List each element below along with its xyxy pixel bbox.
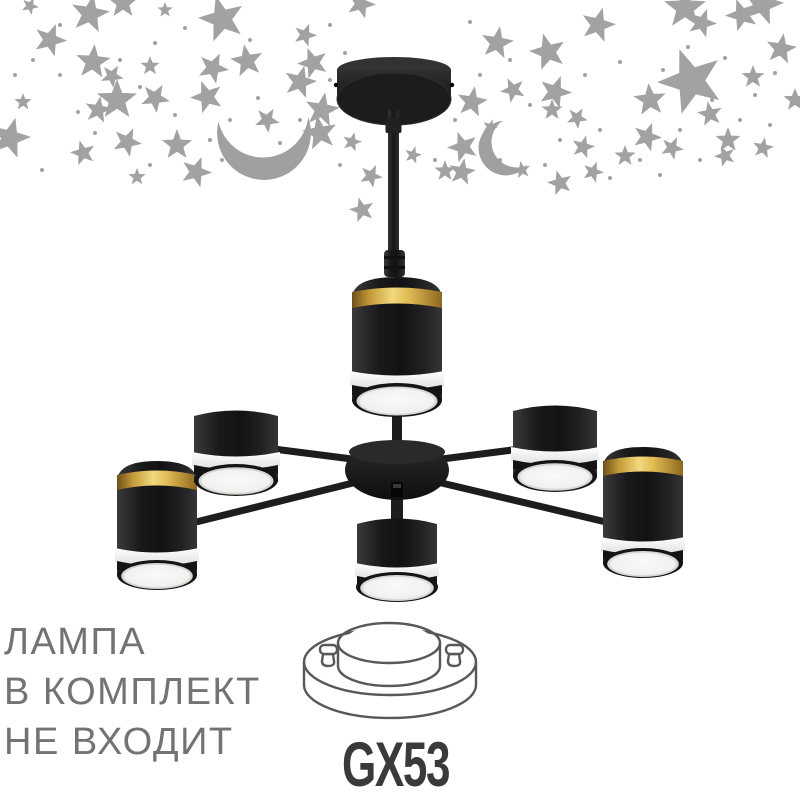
star-icon <box>14 93 31 109</box>
star-icon <box>482 26 514 58</box>
star-dot-icon <box>118 58 122 62</box>
star-icon <box>767 33 797 63</box>
star-dot-icon <box>710 98 714 102</box>
lamp-head-top <box>350 277 444 417</box>
gx53-pin-icon <box>320 645 337 666</box>
star-icon <box>742 65 765 87</box>
star-icon <box>584 162 604 183</box>
star-icon <box>714 146 734 167</box>
lamp-notice: ЛАМПА В КОМПЛЕКТ НЕ ВХОДИТ <box>4 617 261 767</box>
star-icon <box>784 88 800 110</box>
star-dot-icon <box>31 58 35 62</box>
star-dot-icon <box>508 58 512 62</box>
product-image: ЛАМПА В КОМПЛЕКТ НЕ ВХОДИТ GX53 <box>0 0 800 800</box>
lamp-head-far-right <box>601 447 685 578</box>
star-dot-icon <box>58 23 62 27</box>
canopy-screw-icon <box>334 83 338 87</box>
star-icon <box>344 132 362 151</box>
star-dot-icon <box>598 128 602 132</box>
star-icon <box>141 85 169 113</box>
star-icon <box>72 0 110 32</box>
star-icon <box>541 76 572 108</box>
star-dot-icon <box>343 51 347 55</box>
star-icon <box>199 54 229 84</box>
star-dot-icon <box>183 26 187 30</box>
star-icon <box>361 165 383 188</box>
star-dot-icon <box>618 60 622 64</box>
star-dot-icon <box>338 163 342 167</box>
star-dot-icon <box>40 168 44 172</box>
star-icon <box>183 157 212 187</box>
star-dot-icon <box>220 158 224 162</box>
star-icon <box>306 92 340 126</box>
star-icon <box>162 129 192 158</box>
lens <box>363 577 431 599</box>
star-icon <box>36 24 67 56</box>
star-dot-icon <box>723 56 727 60</box>
star-icon <box>114 128 142 156</box>
star-icon <box>725 0 756 31</box>
star-dot-icon <box>768 123 772 127</box>
star-dot-icon <box>661 68 665 72</box>
star-icon <box>447 132 476 162</box>
star-dot-icon <box>173 113 177 117</box>
star-dot-icon <box>148 163 152 167</box>
star-dot-icon <box>13 73 17 77</box>
star-icon <box>230 44 262 76</box>
star-icon <box>198 0 242 41</box>
star-dot-icon <box>686 45 690 49</box>
star-icon <box>567 109 588 129</box>
star-icon <box>349 197 373 222</box>
star-icon <box>70 140 94 165</box>
lamp-notice-line: ЛАМПА <box>4 617 261 667</box>
lamp-head-mid-right <box>511 406 599 493</box>
gx53-label: GX53 <box>342 729 449 800</box>
star-dot-icon <box>753 93 757 97</box>
star-dot-icon <box>543 163 547 167</box>
star-dot-icon <box>698 158 702 162</box>
star-icon <box>662 137 684 160</box>
star-icon <box>295 24 317 47</box>
star-dot-icon <box>76 110 80 114</box>
star-dot-icon <box>153 41 157 45</box>
star-dot-icon <box>658 173 662 177</box>
lens <box>201 469 271 493</box>
star-dot-icon <box>328 23 332 27</box>
star-icon <box>101 66 124 88</box>
star-icon <box>0 118 31 158</box>
star-dot-icon <box>638 158 642 162</box>
star-icon <box>190 81 221 113</box>
lens <box>610 553 676 575</box>
star-dot-icon <box>773 71 777 75</box>
lens <box>360 388 435 414</box>
moon-icon <box>217 86 311 180</box>
star-dot-icon <box>558 138 562 142</box>
lens <box>520 465 590 489</box>
canopy-screw-icon <box>450 83 454 87</box>
moon-icon <box>479 121 534 176</box>
rod-coupler <box>384 250 405 277</box>
star-dot-icon <box>58 73 62 77</box>
lens <box>124 565 190 587</box>
star-icon <box>141 56 160 74</box>
star-dot-icon <box>468 20 472 24</box>
lamp-head-mid-left <box>192 411 280 497</box>
star-icon <box>716 127 741 151</box>
star-icon <box>128 168 145 184</box>
center-hub <box>345 440 449 500</box>
star-icon <box>547 170 571 195</box>
lamp-head-bottom <box>355 519 439 603</box>
star-icon <box>633 83 665 115</box>
star-dot-icon <box>678 128 682 132</box>
suspension-rod <box>384 110 405 277</box>
star-icon <box>657 49 719 114</box>
star-dot-icon <box>608 176 612 180</box>
star-icon <box>529 34 564 70</box>
lamp-notice-line: НЕ ВХОДИТ <box>4 717 261 767</box>
star-dot-icon <box>138 85 142 89</box>
star-icon <box>573 135 595 158</box>
star-icon <box>349 0 376 18</box>
star-icon <box>22 0 39 15</box>
lamp-head-far-left <box>115 461 199 590</box>
star-icon <box>753 137 774 158</box>
star-icon <box>76 44 110 77</box>
star-icon <box>108 0 138 16</box>
star-dot-icon <box>738 118 742 122</box>
star-dot-icon <box>208 138 212 142</box>
star-icon <box>435 160 456 180</box>
star-dot-icon <box>453 118 457 122</box>
star-dot-icon <box>583 73 587 77</box>
star-dot-icon <box>478 73 482 77</box>
star-icon <box>406 146 423 163</box>
star-dot-icon <box>93 131 97 135</box>
star-dot-icon <box>433 158 437 162</box>
star-icon <box>450 158 476 184</box>
star-dot-icon <box>528 103 532 107</box>
star-icon <box>500 78 524 103</box>
gx53-pin-icon <box>446 645 463 666</box>
gx53-lamp-icon <box>304 623 476 718</box>
lamp-notice-line: В КОМПЛЕКТ <box>4 667 261 717</box>
star-dot-icon <box>328 78 332 82</box>
star-icon <box>458 86 488 116</box>
star-icon <box>697 101 721 126</box>
star-icon <box>615 145 636 165</box>
chandelier <box>115 57 685 602</box>
star-icon <box>635 123 662 151</box>
star-icon <box>583 8 616 42</box>
star-icon <box>157 2 172 17</box>
star-dot-icon <box>248 38 252 42</box>
